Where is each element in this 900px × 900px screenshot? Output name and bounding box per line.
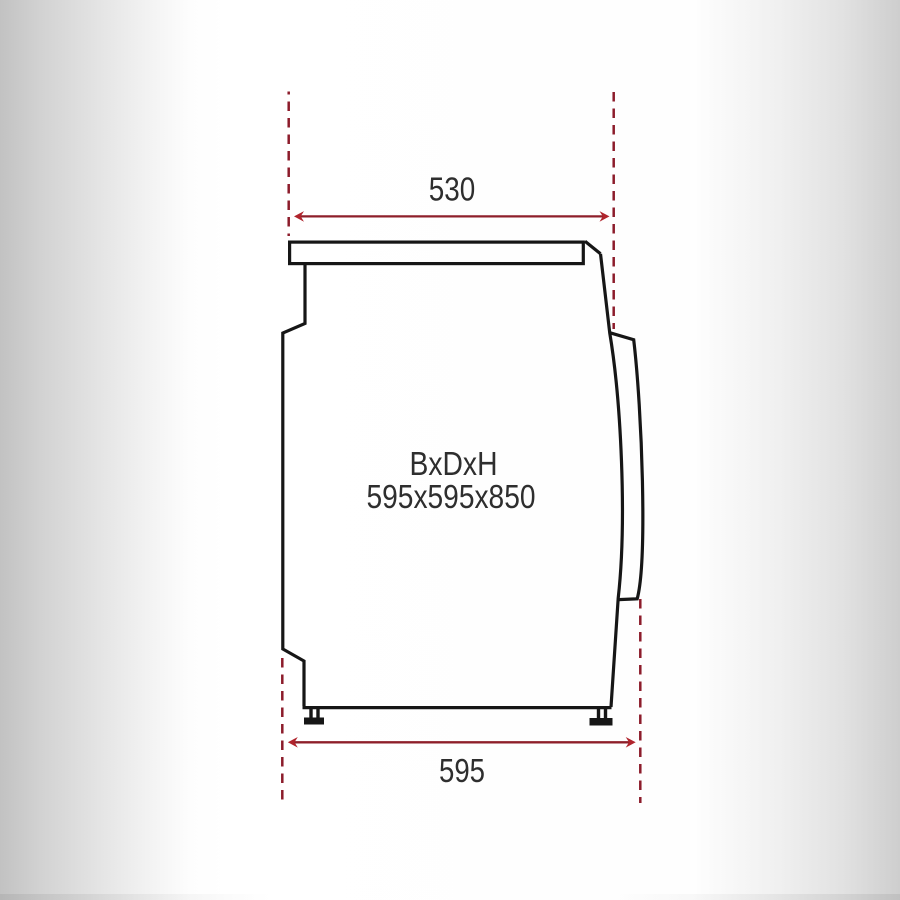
- svg-text:530: 530: [429, 171, 476, 208]
- svg-text:BxDxH: BxDxH: [410, 446, 498, 483]
- svg-text:595: 595: [439, 753, 485, 790]
- svg-text:595x595x850: 595x595x850: [367, 479, 536, 516]
